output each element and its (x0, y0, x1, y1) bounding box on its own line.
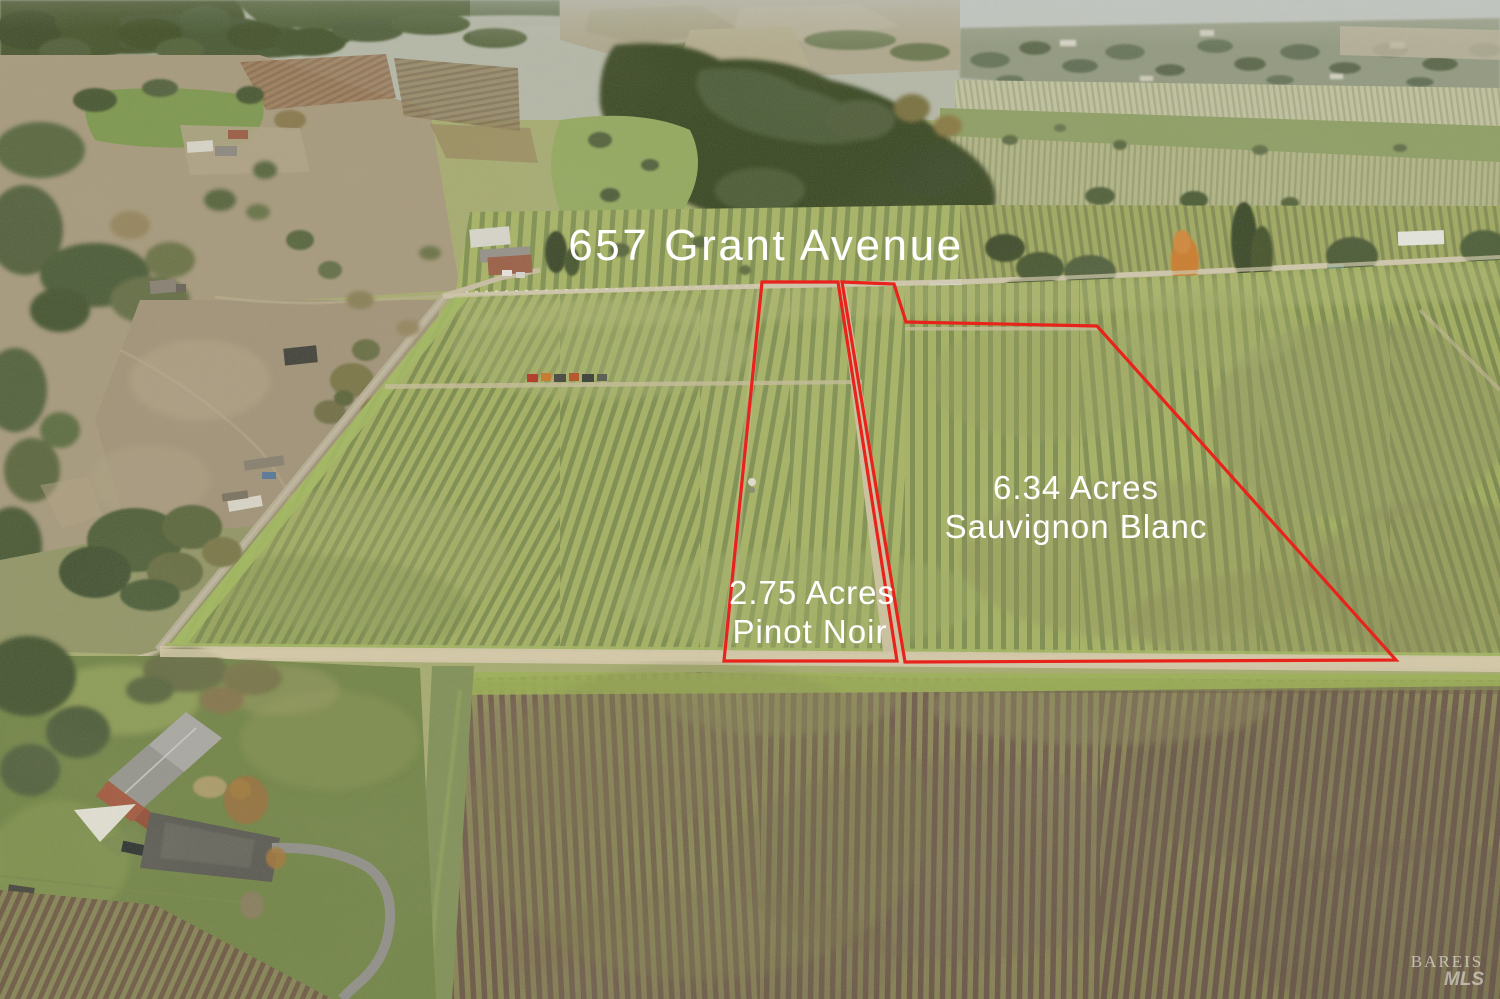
svg-text:MLS: MLS (1444, 969, 1484, 990)
svg-text:Sauvignon Blanc: Sauvignon Blanc (945, 508, 1208, 545)
svg-text:Pinot Noir: Pinot Noir (733, 613, 888, 650)
svg-text:2.75 Acres: 2.75 Acres (729, 574, 895, 611)
svg-text:6.34 Acres: 6.34 Acres (993, 469, 1159, 506)
svg-text:657 Grant Avenue: 657 Grant Avenue (568, 221, 964, 270)
